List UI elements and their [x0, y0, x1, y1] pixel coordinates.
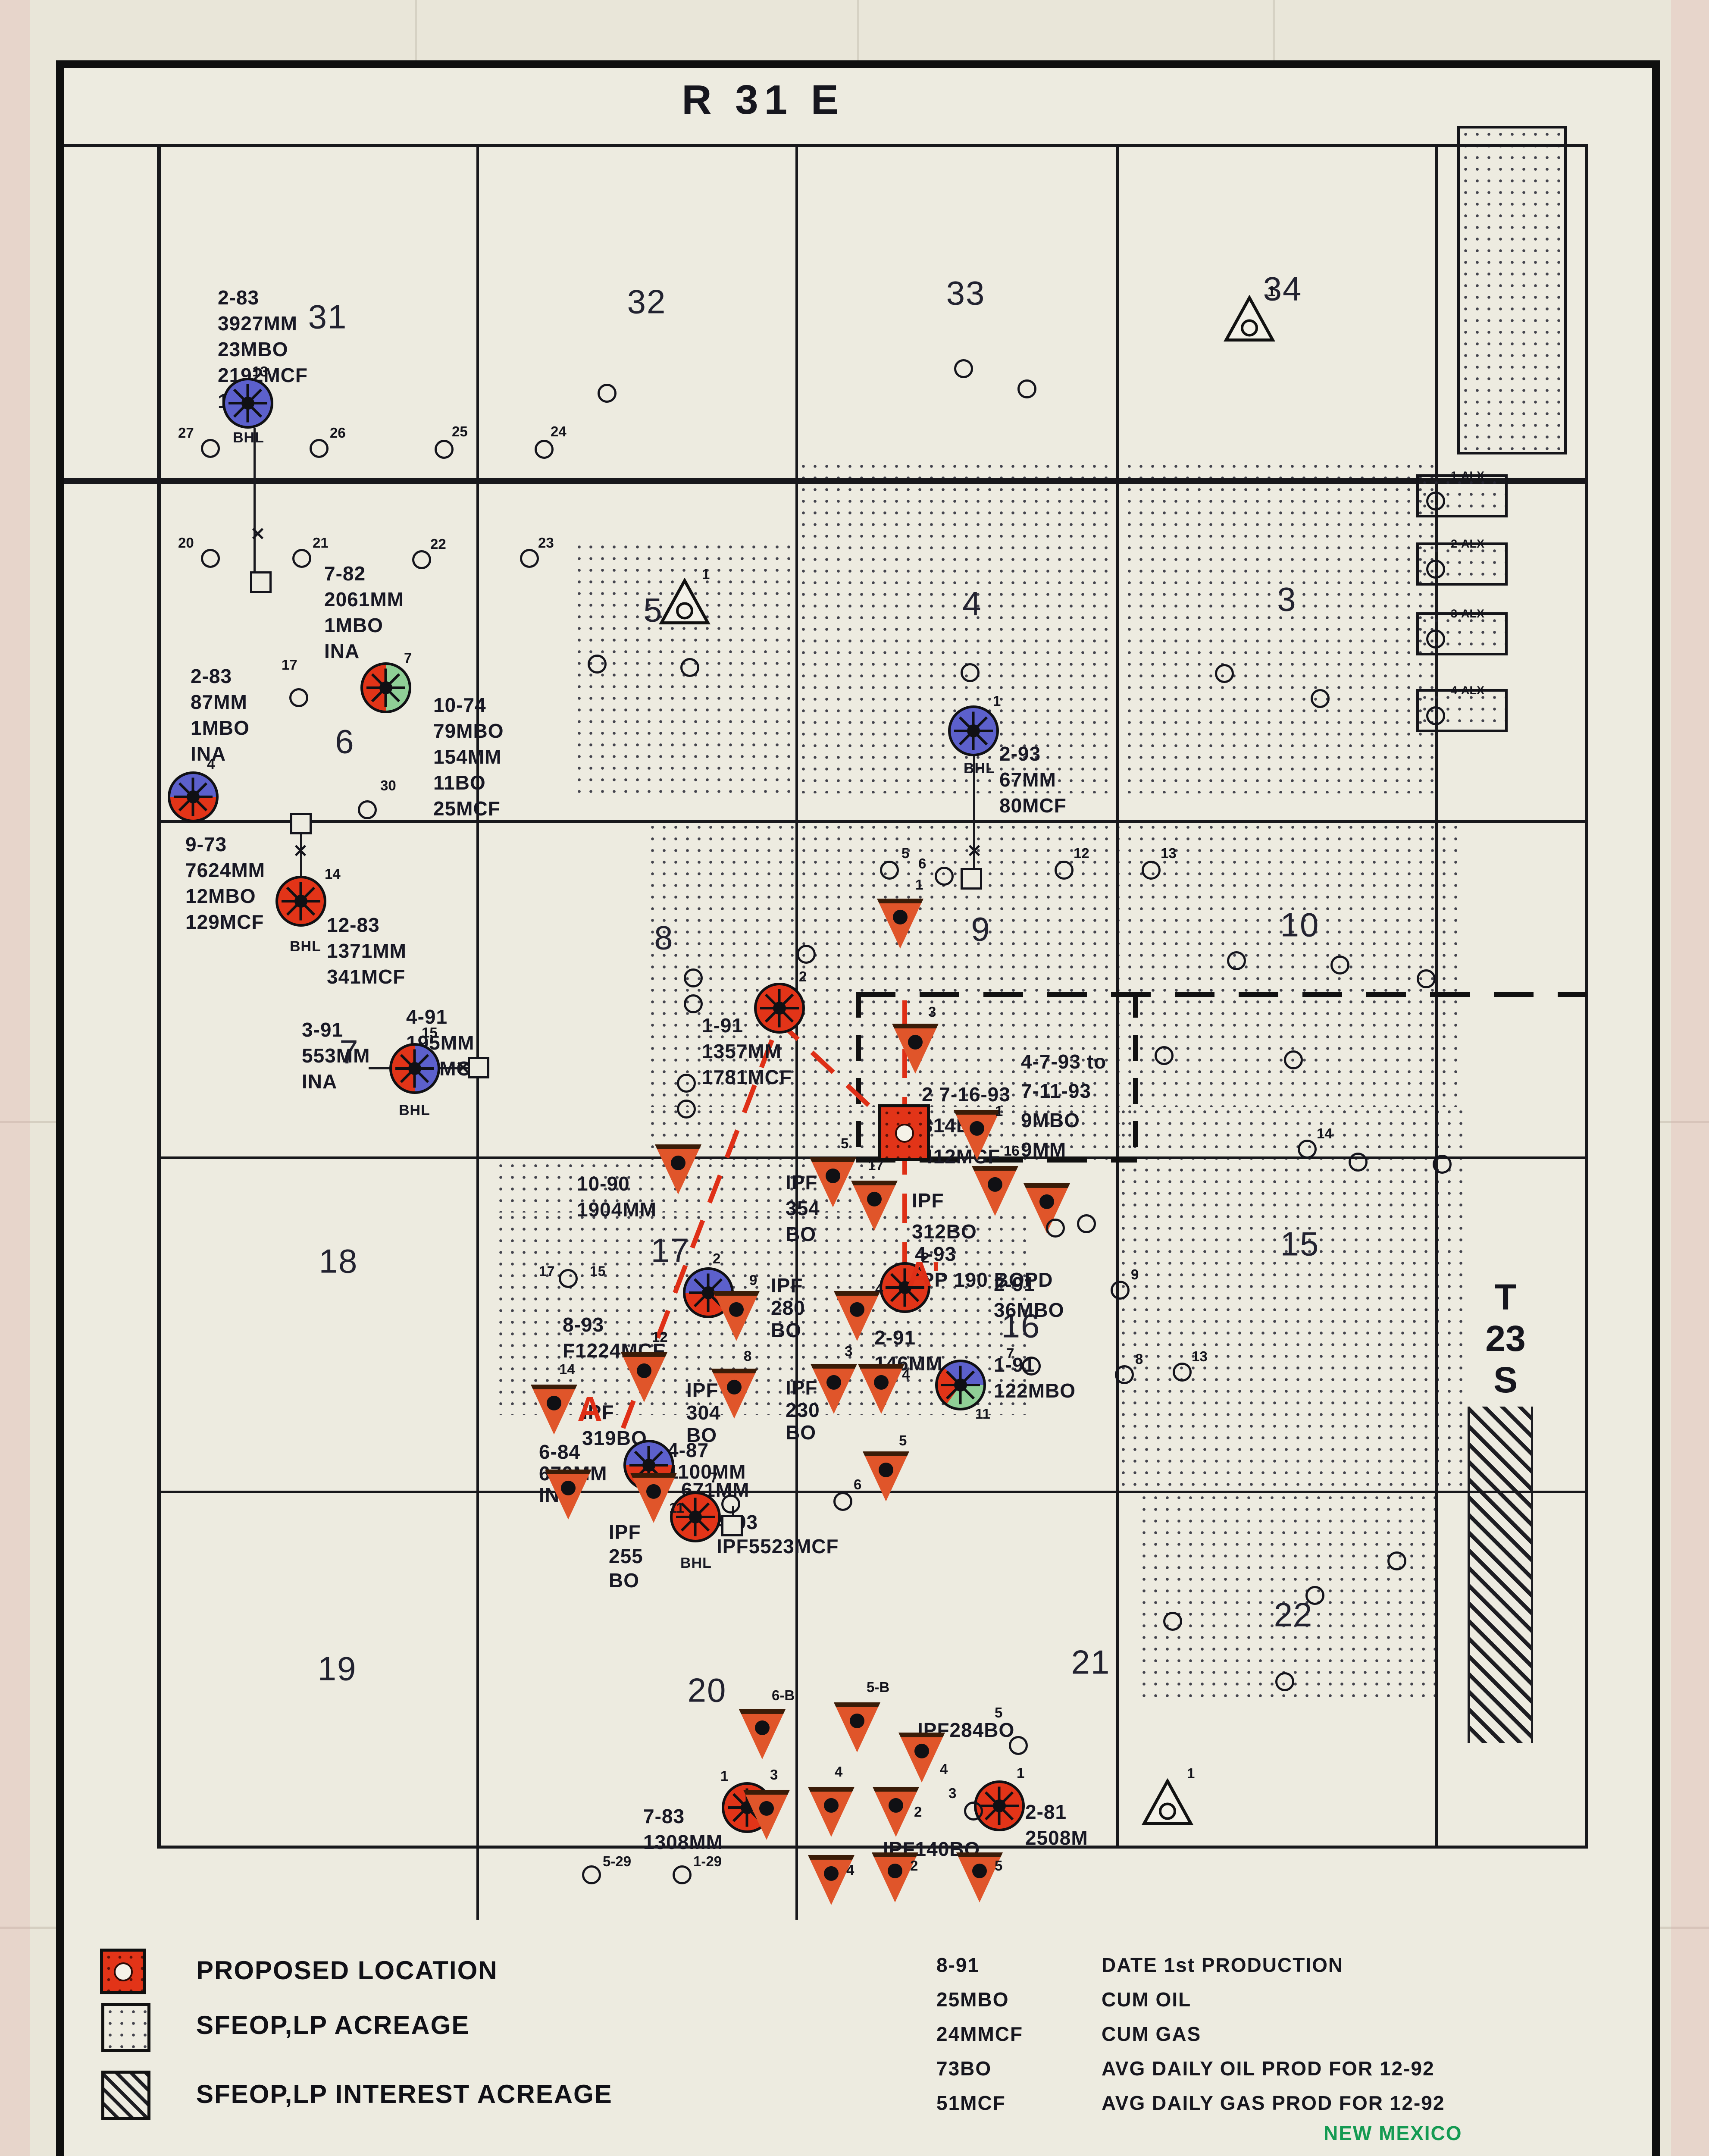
well-location-circle	[677, 1100, 696, 1119]
section-number: 8	[654, 918, 673, 958]
well-number-label: 7	[710, 1470, 718, 1486]
well-location-circle	[358, 800, 377, 819]
well-location-circle	[1163, 1612, 1182, 1631]
well-number-label: 6	[854, 1476, 861, 1493]
map-annotation: 10-901904MM	[577, 1171, 657, 1222]
prod-legend-value: 24MMCF	[936, 2022, 1023, 2046]
well-location-circle	[684, 968, 703, 987]
legend-label: SFEOP,LP ACREAGE	[196, 2010, 470, 2040]
annotation-line: 6-84	[539, 1441, 607, 1463]
section-number: 17	[651, 1231, 690, 1270]
well-location-circle	[582, 1865, 601, 1884]
map-annotation: 2-9136MBO	[994, 1271, 1064, 1323]
annotation-line: 36MBO	[994, 1297, 1064, 1323]
well-number-label: 4	[846, 1862, 854, 1878]
producing-well	[754, 983, 805, 1034]
annotation-line: 4-87	[667, 1439, 746, 1461]
proposed-location-marker	[878, 1104, 930, 1161]
section-number: 32	[627, 282, 667, 322]
annotation-line: 280	[771, 1297, 805, 1319]
prod-legend-desc: AVG DAILY GAS PROD FOR 12-92	[1102, 2091, 1445, 2115]
grid-line	[159, 1491, 1588, 1493]
map-annotation: 2-9367MM80MCF	[999, 741, 1067, 818]
well-number-label: 1-29	[693, 1853, 722, 1870]
well-number-label: 4	[940, 1761, 948, 1777]
annotation-line: 10-90	[577, 1171, 657, 1197]
well-number-label: 23	[538, 535, 554, 551]
well-number-label: 24	[551, 423, 567, 440]
producing-well	[222, 378, 273, 429]
well-number-label: 14	[1317, 1125, 1333, 1142]
well-location-circle	[1009, 1736, 1028, 1755]
well-number-label: 15	[422, 1025, 438, 1041]
well-location-circle	[964, 1802, 983, 1821]
alx-label: 2-ALX	[1451, 537, 1484, 551]
well-number-label: 5	[901, 845, 909, 862]
section-number: 10	[1280, 906, 1320, 945]
well-location-circle	[1077, 1214, 1096, 1233]
well-location-circle	[1142, 861, 1161, 880]
stamp-ocd: OIL CONSERVATION DIVISION	[1242, 2154, 1550, 2156]
bhl-square	[468, 1057, 489, 1078]
sfeop-acreage-region	[1117, 1106, 1468, 1492]
x-mark	[294, 845, 307, 857]
annotation-line: 304	[686, 1401, 721, 1424]
well-location-circle	[680, 658, 699, 677]
well-number-label: 26	[330, 425, 346, 441]
well-number-label: 1	[720, 1768, 728, 1784]
x-mark	[968, 845, 980, 857]
map-annotation: BHL	[680, 1550, 712, 1576]
well-location-circle	[1387, 1551, 1406, 1570]
map-annotation: BHL	[290, 934, 321, 959]
well-location-circle	[1426, 560, 1445, 579]
annotation-line: 2-83	[191, 663, 250, 689]
map-annotation: IPF304BO	[686, 1379, 721, 1446]
acreage-legend-swatch	[101, 2003, 150, 2052]
annotation-line: 9MM	[1021, 1135, 1106, 1164]
well-location-circle	[1426, 630, 1445, 649]
section-number: 4	[962, 584, 982, 624]
grid-line	[64, 478, 1588, 484]
township-letter: T	[1485, 1276, 1525, 1318]
annotation-line: INA	[324, 638, 404, 664]
well-number-label: 3	[948, 1785, 956, 1802]
well-number-label: 4	[902, 1366, 910, 1383]
producing-well	[948, 705, 999, 756]
section-number: 6	[335, 722, 354, 761]
grid-line	[64, 144, 1588, 147]
alx-label: 3-ALX	[1451, 607, 1484, 620]
well-number-label: 22	[430, 536, 446, 552]
well-number-label: 17	[282, 657, 297, 673]
annotation-line: 122MBO	[994, 1378, 1076, 1404]
annotation-line: 1371MM	[327, 938, 407, 964]
map-annotation: BHL	[964, 755, 995, 781]
section-number: 3	[1277, 580, 1296, 619]
annotation-line: 67MM	[999, 767, 1067, 793]
well-location-circle	[520, 549, 539, 568]
well-center-dot	[187, 790, 200, 803]
prod-legend-desc: AVG DAILY OIL PROD FOR 12-92	[1102, 2057, 1435, 2080]
prod-legend-value: 73BO	[936, 2057, 992, 2080]
well-location-circle	[1227, 951, 1246, 970]
map-annotation: IPF280BO	[771, 1274, 805, 1341]
map-annotation: IPF354BO	[786, 1169, 820, 1247]
annotation-line: 2508M	[1025, 1825, 1088, 1851]
well-number-label: 6-B	[772, 1687, 795, 1704]
well-location-circle	[289, 688, 308, 707]
annotation-line: IPF5523MCF	[717, 1534, 839, 1558]
annotation-line: 2-91	[874, 1325, 942, 1351]
well-location-circle	[1426, 492, 1445, 511]
well-number-label: 16	[1004, 1143, 1020, 1159]
annotation-line: 10-74	[433, 692, 504, 718]
well-location-circle	[598, 384, 617, 403]
section-number: 15	[1280, 1225, 1320, 1264]
annotation-line: IPF	[609, 1520, 643, 1544]
well-location-circle	[588, 655, 607, 674]
interest-acreage-legend-swatch	[101, 2071, 150, 2120]
well-number-label: 1	[995, 1103, 1003, 1119]
scan-edge-tint	[0, 0, 30, 2156]
well-number-label: 2	[799, 968, 807, 985]
map-annotation: IPF230BO	[786, 1376, 820, 1444]
annotation-line: BO	[786, 1421, 820, 1444]
well-location-circle	[1155, 1046, 1174, 1065]
annotation-line: 15	[590, 1258, 606, 1284]
well-number-label: 4	[835, 1764, 842, 1780]
bhl-square	[250, 571, 272, 593]
well-location-circle	[797, 945, 816, 964]
prod-legend-value: 51MCF	[936, 2091, 1006, 2115]
well-number-label: 5	[899, 1432, 907, 1449]
well-location-circle	[1017, 379, 1036, 398]
well-number-label: 13	[1161, 845, 1177, 862]
prod-legend-value: 8-91	[936, 1953, 980, 1977]
scan-edge-tint	[1671, 0, 1709, 2156]
map-annotation: BHL	[233, 425, 264, 451]
bhl-square	[290, 813, 312, 834]
well-location-circle	[1305, 1586, 1324, 1605]
well-number-label: 1	[993, 693, 1001, 709]
annotation-line: BHL	[680, 1550, 712, 1576]
annotation-line: 154MM	[433, 744, 504, 770]
well-number-label: 12	[652, 1329, 668, 1345]
grid-line	[1435, 145, 1438, 1849]
township-number: 23	[1485, 1318, 1525, 1359]
well-center-dot	[642, 1459, 655, 1472]
map-annotation: 7-831308MM	[643, 1803, 723, 1855]
annotation-line: 1357MM	[702, 1038, 792, 1064]
annotation-line: BHL	[964, 755, 995, 781]
section-number: 21	[1071, 1643, 1111, 1682]
well-location-circle	[954, 359, 973, 378]
annotation-line: 1308MM	[643, 1829, 723, 1855]
well-center-dot	[702, 1286, 715, 1299]
section-number: 18	[319, 1242, 358, 1281]
grid-line	[157, 145, 161, 1849]
grid-line	[159, 820, 1588, 823]
sfeop-acreage-region	[1457, 126, 1567, 454]
well-location-circle	[961, 663, 980, 682]
well-location-circle	[1173, 1363, 1192, 1382]
well-location-circle	[1115, 1365, 1134, 1384]
producing-well	[670, 1492, 721, 1542]
well-number-label: 12	[1074, 845, 1089, 862]
producing-well	[389, 1043, 440, 1094]
well-center-dot	[294, 895, 307, 908]
well-location-circle	[201, 439, 220, 458]
annotation-line: BO	[771, 1319, 805, 1341]
map-annotation: 7-822061MM1MBOINA	[324, 561, 404, 664]
well-number-label: 4	[875, 1281, 883, 1297]
well-center-dot	[408, 1062, 421, 1075]
annotation-line: 2-91	[994, 1271, 1064, 1297]
section-number: 19	[318, 1649, 357, 1689]
well-center-dot	[773, 1002, 786, 1015]
annotation-line: 7-82	[324, 561, 404, 586]
alx-label: 4-ALX	[1451, 684, 1484, 697]
producing-well	[168, 771, 219, 822]
well-number-label: 5-29	[603, 1853, 631, 1870]
annotation-line: 2061MM	[324, 586, 404, 612]
well-number-label: 1	[702, 566, 710, 583]
well-location-circle	[1046, 1219, 1065, 1238]
map-annotation: 2-8387MM1MBOINA	[191, 663, 250, 767]
well-location-circle	[435, 440, 454, 459]
well-location-circle	[310, 439, 329, 458]
range-label: R 31 E	[682, 76, 844, 124]
annotation-line: 255	[609, 1544, 643, 1568]
well-number-label: 2	[713, 1250, 720, 1267]
well-number-label: 7	[1006, 1345, 1014, 1362]
annotation-line: 1781MCF	[702, 1064, 792, 1090]
well-center-dot	[689, 1510, 702, 1523]
annotation-line: IPF	[786, 1376, 820, 1399]
well-number-label: 5	[841, 1135, 848, 1152]
well-center-dot	[954, 1379, 967, 1391]
section-number: 31	[308, 298, 347, 337]
annotation-line: 4-7-93 to	[1021, 1047, 1106, 1076]
annotation-line: BHL	[233, 425, 264, 451]
annotation-line: 2-93	[999, 741, 1067, 767]
annotation-line: INA	[191, 741, 250, 767]
annotation-line: 7-83	[643, 1803, 723, 1829]
annotation-line: BHL	[290, 934, 321, 959]
well-number-label: 25	[452, 423, 468, 440]
map-annotation: 10-7479MBO154MM11BO25MCF	[433, 692, 504, 821]
td-delaware-triangle	[1142, 1779, 1193, 1828]
well-location-circle	[833, 1492, 852, 1511]
annotation-line: 23MBO	[218, 336, 308, 362]
annotation-line: 1MBO	[191, 715, 250, 741]
annotation-line: 2-81	[1025, 1799, 1088, 1825]
x-mark	[252, 528, 264, 540]
stamp-new-mexico: NEW MEXICO	[1324, 2122, 1462, 2145]
township-letter: S	[1485, 1359, 1525, 1401]
annotation-line: IPF	[912, 1185, 977, 1216]
proration-unit-boundary	[856, 992, 861, 1161]
well-number-label: 7	[404, 650, 412, 666]
map-annotation: 3-91553MMINA	[302, 1017, 370, 1094]
annotation-line: 17	[539, 1258, 555, 1284]
td-delaware-triangle	[1224, 295, 1275, 345]
annotation-line: 3927MM	[218, 310, 308, 336]
alx-label: 1-ALX	[1451, 469, 1484, 483]
well-location-circle	[880, 861, 899, 880]
well-number-label: 2	[910, 1858, 918, 1874]
map-annotation: BHL	[399, 1097, 430, 1123]
annotation-line: 12MBO	[185, 883, 265, 909]
td-delaware-triangle	[659, 578, 711, 628]
well-number-label: 21	[313, 535, 329, 551]
prod-legend-desc: DATE 1st PRODUCTION	[1102, 1953, 1343, 1977]
annotation-line: 11BO	[433, 770, 504, 796]
annotation-line: BO	[786, 1221, 820, 1247]
well-location-circle	[1311, 689, 1330, 708]
annotation-line: BHL	[399, 1097, 430, 1123]
well-location-circle	[201, 549, 220, 568]
annotation-line: 4-91	[406, 1004, 484, 1030]
annotation-line: 80MCF	[999, 793, 1067, 818]
annotation-line: 1904MM	[577, 1197, 657, 1222]
well-number-label: 8	[1135, 1351, 1143, 1367]
annotation-line: IPF	[786, 1169, 820, 1195]
map-annotation: 9-737624MM12MBO129MCF	[185, 831, 265, 935]
annotation-line: 9-73	[185, 831, 265, 857]
well-location-circle	[673, 1865, 692, 1884]
well-number-label: 8	[744, 1348, 751, 1364]
well-location-circle	[535, 440, 554, 459]
annotation-line: 87MM	[191, 689, 250, 715]
well-number-label: 27	[178, 425, 194, 441]
well-number-label: 1	[1268, 283, 1275, 300]
producing-well	[935, 1360, 986, 1410]
annotation-line: 12-83	[327, 912, 407, 938]
map-annotation: 2-812508M	[1025, 1799, 1088, 1851]
annotation-line: IPF	[771, 1274, 805, 1297]
well-number-label: 1	[915, 877, 923, 893]
well-location-circle	[292, 549, 311, 568]
well-location-circle	[721, 1495, 740, 1514]
flowline	[300, 833, 302, 883]
well-number-label: 5	[995, 1705, 1002, 1721]
map-annotation: IPF312BO	[912, 1185, 977, 1247]
well-number-label: 9	[1131, 1266, 1139, 1283]
well-number-label: 3	[845, 1343, 852, 1360]
grid-line	[795, 145, 798, 1920]
well-location-circle	[1215, 664, 1234, 683]
well-number-label: 30	[380, 777, 396, 794]
annotation-line: 9MBO	[1021, 1106, 1106, 1135]
well-number-label: 11	[975, 1406, 990, 1422]
well-location-circle	[559, 1269, 578, 1288]
annotation-line: 230	[786, 1399, 820, 1421]
bhl-square	[961, 868, 982, 890]
well-number-label: 1	[1017, 1765, 1024, 1781]
grid-line	[1585, 145, 1588, 1849]
well-location-circle	[1275, 1672, 1294, 1691]
annotation-line: 2-83	[218, 285, 308, 310]
well-number-label: 4	[207, 756, 215, 772]
proration-unit-boundary	[1133, 992, 1138, 1161]
well-center-dot	[241, 397, 254, 410]
annotation-line: 79MBO	[433, 718, 504, 744]
annotation-line: 129MCF	[185, 909, 265, 935]
cross-section-a-label: A	[577, 1389, 602, 1429]
prod-legend-desc: CUM GAS	[1102, 2022, 1201, 2046]
map-annotation: 12-831371MM341MCF	[327, 912, 407, 990]
well-location-circle	[684, 994, 703, 1013]
well-location-circle	[1426, 706, 1445, 725]
bhl-square	[721, 1515, 743, 1536]
annotation-line: 8-93	[563, 1312, 665, 1338]
well-location-circle	[1330, 956, 1349, 975]
well-center-dot	[379, 681, 392, 694]
annotation-line: IPF	[686, 1379, 721, 1401]
well-number-label: 5-B	[867, 1679, 889, 1695]
sfeop-interest-acreage-region	[1468, 1407, 1533, 1743]
map-annotation: IPF255BO	[609, 1520, 643, 1592]
well-number-label: 9	[749, 1272, 757, 1288]
grid-line	[1116, 145, 1119, 1849]
well-center-dot	[967, 724, 980, 737]
well-number-label: 3	[770, 1767, 778, 1783]
proposed-location-legend-swatch	[100, 1949, 146, 1994]
map-annotation: 15	[590, 1258, 606, 1284]
prod-legend-desc: CUM OIL	[1102, 1988, 1191, 2011]
section-number: 20	[688, 1671, 727, 1710]
section-number: 33	[946, 274, 986, 313]
producing-well	[275, 876, 326, 927]
annotation-line: 25MCF	[433, 796, 504, 821]
proration-unit-boundary	[856, 992, 1587, 997]
well-location-circle	[1022, 1357, 1041, 1376]
well-number-label: 2	[914, 1804, 922, 1820]
well-number-label: 13	[1192, 1348, 1208, 1365]
well-location-circle	[935, 867, 954, 886]
well-number-label: 6	[918, 856, 926, 872]
annotation-line: 7624MM	[185, 857, 265, 883]
annotation-line: 341MCF	[327, 964, 407, 990]
map-annotation: 17	[539, 1258, 555, 1284]
well-location-circle	[412, 550, 431, 569]
well-number-label: 14	[325, 866, 341, 882]
well-number-label: 14	[559, 1361, 575, 1378]
well-location-circle	[677, 1074, 696, 1093]
well-location-circle	[1349, 1153, 1368, 1172]
well-center-dot	[993, 1799, 1006, 1812]
annotation-line: 3-91	[302, 1017, 370, 1043]
section-number: 9	[971, 910, 990, 949]
well-number-label: 13	[252, 364, 268, 380]
well-location-circle	[1433, 1155, 1452, 1174]
producing-well	[360, 662, 411, 713]
grid-line	[159, 1846, 1588, 1849]
map-annotation: 4-7-93 to7-11-939MBO9MM	[1021, 1047, 1106, 1164]
well-number-label: 1	[1187, 1765, 1195, 1782]
annotation-line: 553MM	[302, 1043, 370, 1069]
cross-section-a-prime-label: A'	[907, 1254, 940, 1294]
annotation-line: 354	[786, 1195, 820, 1221]
legend-label: PROPOSED LOCATION	[196, 1955, 498, 1985]
annotation-line: 1MBO	[324, 612, 404, 638]
well-number-label: 3	[928, 1004, 936, 1020]
well-location-circle	[1111, 1281, 1130, 1300]
map-annotation: 4-871100MM	[667, 1439, 746, 1482]
legend-label: SFEOP,LP INTEREST ACREAGE	[196, 2079, 613, 2109]
